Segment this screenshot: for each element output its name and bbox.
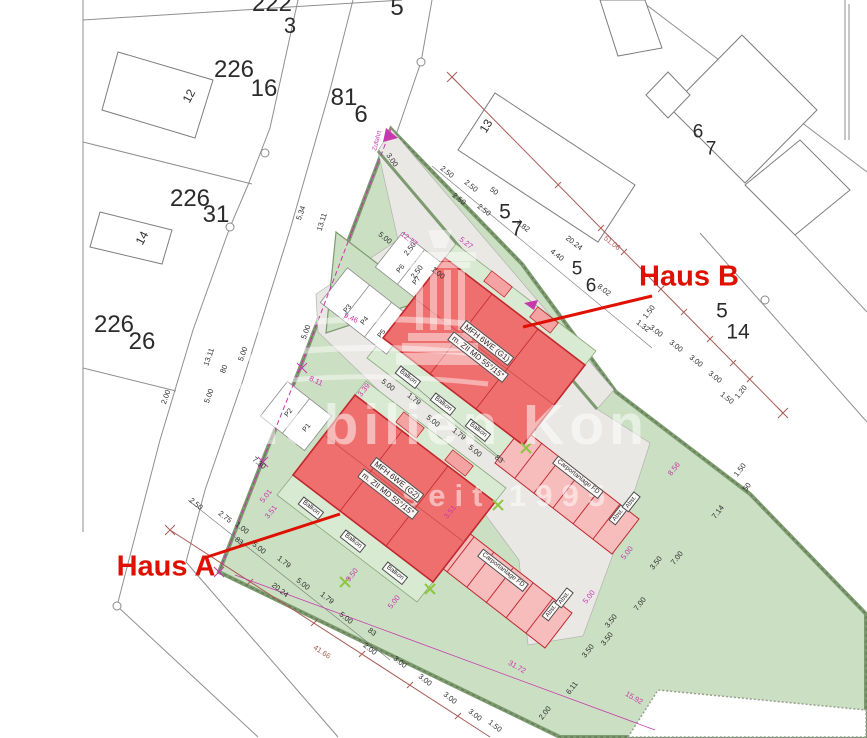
plan-drawing — [0, 0, 867, 738]
site-plan: mobilien Kon seit 1995 22232261612226311… — [0, 0, 867, 738]
